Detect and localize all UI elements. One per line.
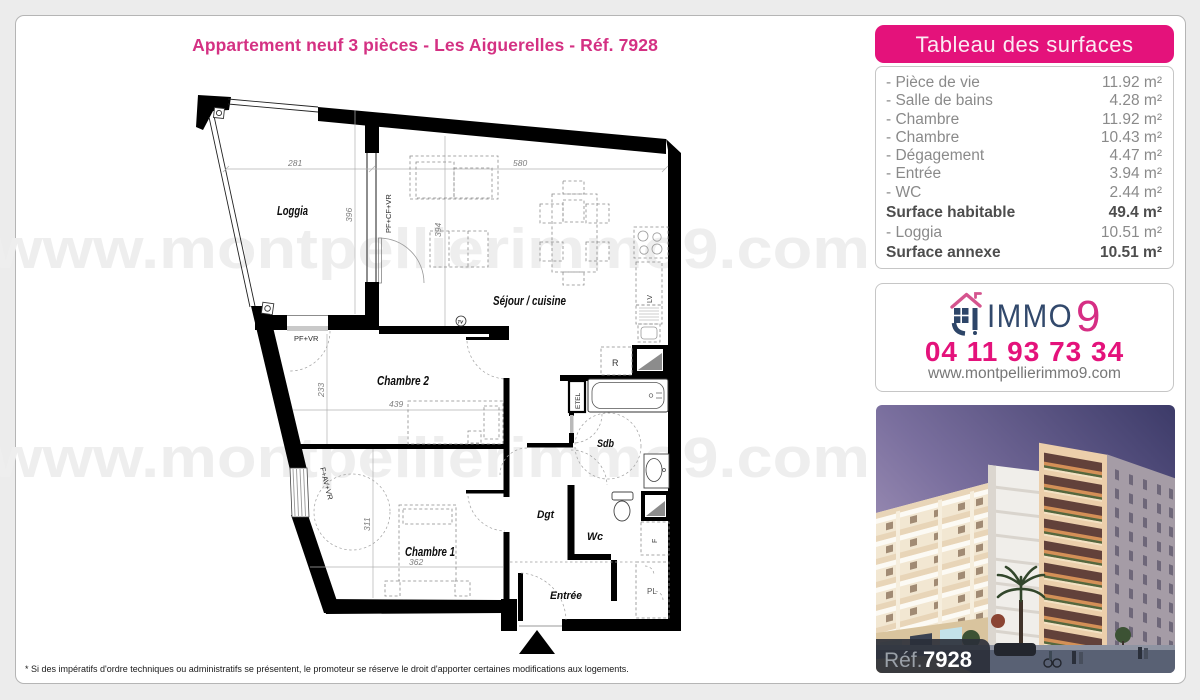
svg-text:PF+VR: PF+VR bbox=[294, 334, 319, 343]
svg-text:IMMO: IMMO bbox=[987, 298, 1073, 334]
svg-text:7928: 7928 bbox=[923, 647, 972, 672]
svg-text:Sdb: Sdb bbox=[597, 438, 614, 450]
svg-text:PF+CF+VR: PF+CF+VR bbox=[384, 194, 393, 233]
svg-text:281: 281 bbox=[287, 158, 302, 168]
svg-text:F: F bbox=[652, 539, 659, 543]
svg-text:www.montpellierimmo9.com: www.montpellierimmo9.com bbox=[0, 426, 870, 490]
svg-text:394: 394 bbox=[433, 223, 443, 237]
svg-text:Réf.: Réf. bbox=[884, 649, 923, 672]
svg-text:233: 233 bbox=[316, 383, 326, 398]
svg-text:439: 439 bbox=[389, 399, 403, 409]
svg-text:R: R bbox=[612, 358, 619, 368]
svg-text:Dgt: Dgt bbox=[537, 509, 555, 521]
svg-text:Entrée: Entrée bbox=[550, 590, 582, 602]
svg-text:9: 9 bbox=[1076, 292, 1100, 337]
svg-text:Chambre 1: Chambre 1 bbox=[405, 545, 455, 559]
svg-text:580: 580 bbox=[513, 158, 527, 168]
svg-text:PL: PL bbox=[647, 587, 657, 596]
svg-text:396: 396 bbox=[344, 208, 354, 222]
svg-text:ETEL: ETEL bbox=[575, 392, 582, 409]
svg-text:LV: LV bbox=[647, 295, 654, 303]
svg-text:311: 311 bbox=[362, 517, 372, 531]
svg-text:Chambre 2: Chambre 2 bbox=[377, 374, 429, 388]
svg-text:Loggia: Loggia bbox=[277, 204, 308, 218]
svg-text:Séjour / cuisine: Séjour / cuisine bbox=[493, 294, 566, 308]
svg-text:Wc: Wc bbox=[587, 531, 603, 543]
